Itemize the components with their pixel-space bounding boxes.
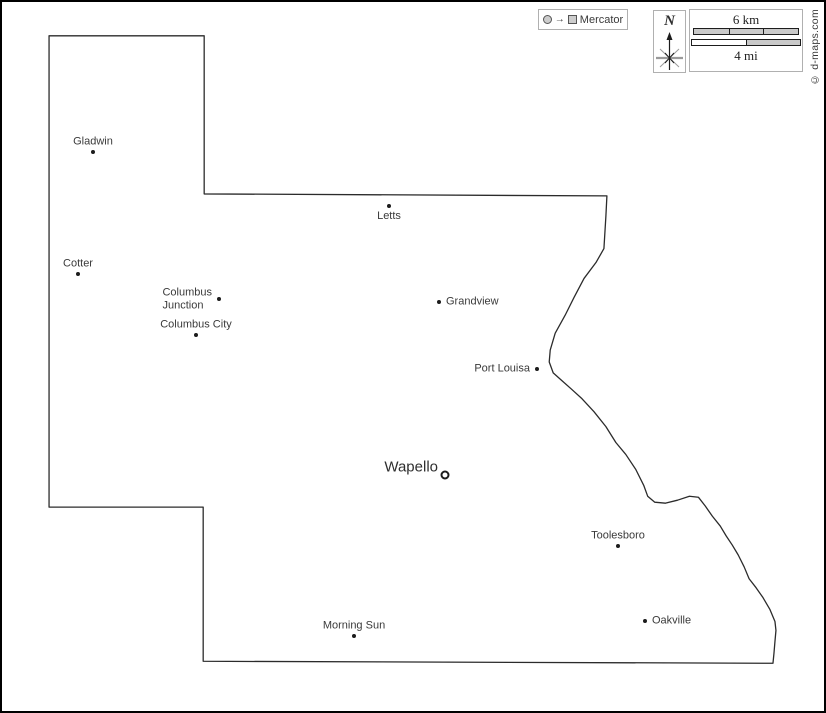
city-marker <box>616 544 620 548</box>
scale-km-bar <box>693 28 799 35</box>
city-marker <box>437 300 441 304</box>
city-marker <box>387 204 391 208</box>
scale-bar: 6 km 4 mi <box>689 9 803 72</box>
city-label: Morning Sun <box>323 619 385 632</box>
scale-tick <box>763 29 764 34</box>
globe-circle-icon <box>543 15 552 24</box>
city-label: Columbus Junction <box>162 286 212 311</box>
projection-label: Mercator <box>580 14 623 26</box>
city-label: Gladwin <box>73 135 113 148</box>
city-label: Toolesboro <box>591 529 645 542</box>
scale-tick <box>729 29 730 34</box>
scale-mi-label: 4 mi <box>734 49 757 62</box>
compass-rose-icon <box>654 30 685 72</box>
scale-km-label: 6 km <box>733 13 759 26</box>
county-outline <box>2 2 824 711</box>
city-marker <box>194 333 198 337</box>
city-label: Wapello <box>384 458 438 475</box>
city-label: Port Louisa <box>474 363 530 376</box>
copyright-watermark: © d-maps.com <box>809 9 821 85</box>
scale-mi-bar <box>691 39 801 46</box>
city-label: Grandview <box>446 296 499 309</box>
arrow-right-icon: → <box>555 15 565 25</box>
city-marker <box>352 634 356 638</box>
projected-square-icon <box>568 15 577 24</box>
compass: N <box>653 10 686 73</box>
map-stage: GladwinLettsCotterColumbus JunctionColum… <box>0 0 826 713</box>
city-label: Cotter <box>63 257 93 270</box>
scale-tick <box>746 40 747 45</box>
city-marker <box>643 619 647 623</box>
north-label: N <box>664 13 675 30</box>
county-border-path <box>49 36 776 663</box>
city-label: Letts <box>377 210 401 223</box>
city-marker <box>441 471 450 480</box>
city-label: Oakville <box>652 615 691 628</box>
projection-legend: → Mercator <box>538 9 628 30</box>
city-marker <box>535 367 539 371</box>
city-marker <box>217 297 221 301</box>
city-label: Columbus City <box>160 318 232 331</box>
city-marker <box>91 150 95 154</box>
city-marker <box>76 272 80 276</box>
